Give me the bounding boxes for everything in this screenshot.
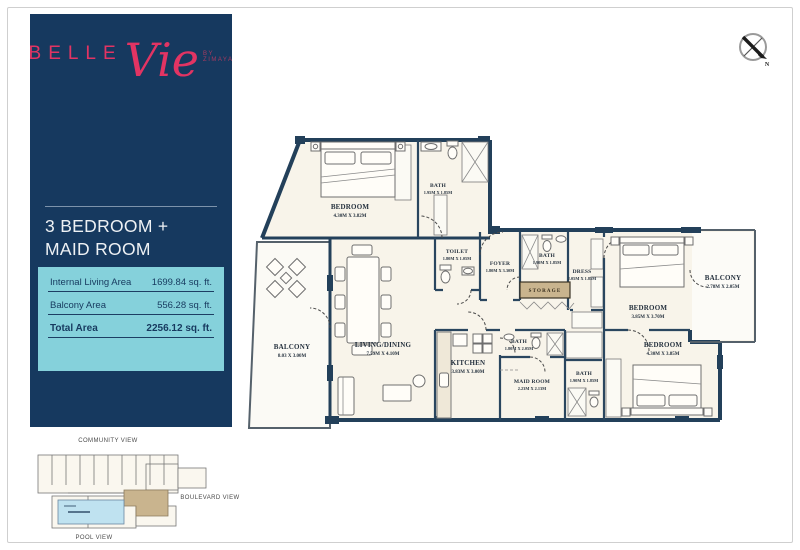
room-label: BATH — [430, 183, 447, 189]
site-key-plan: COMMUNITY VIEW BOULEVARD VIEW POOL VIEW — [28, 430, 246, 544]
room-dims: 8.03 X 3.00M — [278, 354, 307, 359]
closet-icon — [434, 195, 447, 235]
room-label: KITCHEN — [451, 359, 485, 367]
area-label: Internal Living Area — [50, 277, 131, 288]
room-dims: 3.83M X 3.00M — [451, 370, 484, 375]
floor-plan: STORAGE — [235, 25, 780, 450]
balcony-left-floor — [249, 242, 330, 428]
unit-type-line1: 3 BEDROOM + — [45, 215, 168, 238]
boulevard-view-label: BOULEVARD VIEW — [180, 495, 239, 501]
storage-label: STORAGE — [529, 289, 562, 294]
area-label: Total Area — [50, 323, 98, 334]
area-label: Balcony Area — [50, 300, 106, 311]
bed-icon — [611, 237, 693, 287]
room-label: TOILET — [446, 249, 468, 255]
room-label: BEDROOM — [629, 304, 668, 312]
room-dims: 4.30M X 3.85M — [646, 352, 679, 357]
wardrobe-icon — [566, 332, 602, 358]
pool — [58, 500, 124, 524]
area-value: 556.28 sq. ft. — [157, 300, 212, 311]
room-label: MAID ROOM — [514, 379, 551, 385]
room-label: BEDROOM — [644, 341, 683, 349]
room-label: BATH — [539, 253, 556, 259]
room-dims: 1.80M X 3.30M — [486, 268, 514, 273]
pool-view-label: POOL VIEW — [75, 535, 112, 541]
room-dims: 1.95M X 1.85M — [424, 190, 452, 195]
room-dims: 7.59M X 4.10M — [366, 352, 399, 357]
room-dims: 3.85M X 3.70M — [631, 315, 664, 320]
logo-script: Vie — [125, 42, 199, 79]
room-dims: 2.23M X 2.13M — [518, 386, 546, 391]
room-dims: 2.78M X 2.05M — [706, 285, 739, 290]
room-dims: 1.80M X 1.05M — [443, 256, 471, 261]
area-row-balcony: Balcony Area 556.28 sq. ft. — [48, 292, 214, 315]
area-value: 2256.12 sq. ft. — [146, 323, 212, 334]
room-dims: 2.05M X 1.85M — [568, 276, 596, 281]
brand-logo: BELLE Vie BY ZIMAYA — [30, 42, 232, 79]
community-view-label: COMMUNITY VIEW — [78, 438, 138, 444]
logo-word: BELLE — [29, 43, 123, 79]
room-label: FOYER — [490, 261, 511, 267]
bed-icon — [622, 365, 712, 416]
compass-icon: N — [740, 34, 770, 68]
area-summary-panel: Internal Living Area 1699.84 sq. ft. Bal… — [38, 267, 224, 371]
room-label: BALCONY — [705, 274, 741, 282]
room-label: DRESS — [573, 269, 592, 275]
area-row-total: Total Area 2256.12 sq. ft. — [48, 315, 214, 338]
bed-icon — [311, 142, 405, 197]
room-label: BEDROOM — [331, 203, 370, 211]
wardrobe-icon — [606, 359, 621, 417]
room-label: BATH — [511, 339, 528, 345]
wardrobe-icon — [591, 239, 603, 269]
unit-type-line2: MAID ROOM — [45, 238, 168, 261]
area-value: 1699.84 sq. ft. — [152, 277, 212, 288]
room-dims: 4.30M X 3.82M — [333, 214, 366, 219]
room-dims: 1.80M X 2.05M — [505, 346, 533, 351]
area-row-internal: Internal Living Area 1699.84 sq. ft. — [48, 269, 214, 292]
divider — [45, 206, 217, 207]
room-dims: 1.90M X 1.85M — [533, 260, 561, 265]
wardrobe-icon — [395, 145, 411, 200]
brochure-page: BELLE Vie BY ZIMAYA 3 BEDROOM + MAID ROO… — [0, 0, 800, 550]
wardrobe-icon — [572, 312, 602, 328]
logo-byline: BY ZIMAYA — [203, 51, 233, 79]
room-label: BALCONY — [274, 343, 310, 351]
sidebar: BELLE Vie BY ZIMAYA 3 BEDROOM + MAID ROO… — [30, 14, 232, 427]
wardrobe-icon — [591, 277, 603, 307]
room-label: BATH — [576, 371, 593, 377]
compass-north-label: N — [765, 62, 770, 68]
room-label: LIVING/DINING — [355, 341, 412, 349]
room-dims: 1.90M X 1.85M — [570, 378, 598, 383]
unit-type-title: 3 BEDROOM + MAID ROOM — [45, 215, 168, 261]
